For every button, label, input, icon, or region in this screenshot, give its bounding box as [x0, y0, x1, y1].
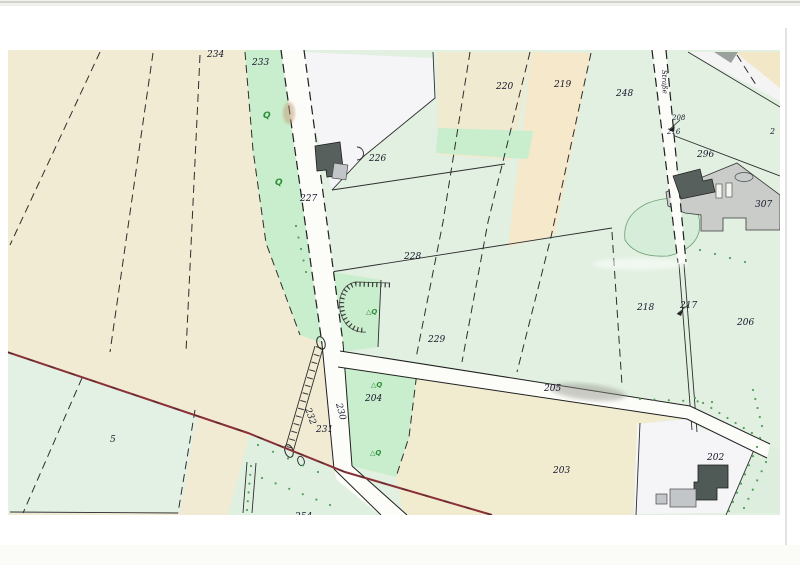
vegetation-dot	[752, 455, 754, 457]
vegetation-dot	[759, 437, 761, 439]
vegetation-dot	[744, 261, 746, 263]
vegetation-dot	[317, 471, 319, 473]
vegetation-dot	[249, 474, 251, 476]
building-202-shed	[656, 494, 667, 504]
vegetation-dot	[329, 504, 331, 506]
vegetation-dot	[275, 482, 277, 484]
oak-symbol: Q	[263, 111, 271, 121]
vegetation-dot	[246, 509, 248, 511]
vegetation-dot	[302, 464, 304, 466]
parcel-label-202: 202	[706, 453, 724, 463]
vegetation-dot	[743, 507, 745, 509]
vegetation-dot	[744, 473, 746, 475]
tree-q-symbol: △Q	[370, 449, 381, 457]
parcel-label-234: 234	[206, 50, 224, 60]
parcel-label-217: 217	[679, 301, 697, 311]
vegetation-dot	[297, 236, 299, 238]
vegetation-dot	[736, 492, 738, 494]
street-name-label: Straße	[660, 70, 669, 94]
vegetation-dot	[751, 432, 753, 434]
vegetation-dot	[302, 259, 304, 261]
parcel-label-296: 296	[696, 150, 714, 160]
smudge-road-227	[283, 102, 295, 124]
vegetation-dot	[305, 271, 307, 273]
vegetation-dot	[300, 248, 302, 250]
vegetation-dot	[756, 479, 758, 481]
parcel-label-5: 5	[110, 435, 116, 445]
parcel-label-229: 229	[427, 335, 445, 345]
parcel-label-248: 248	[615, 89, 633, 99]
parcel-label-228: 228	[403, 252, 421, 262]
vegetation-dot	[694, 397, 696, 399]
parcel-label-227: 227	[299, 194, 317, 204]
vegetation-dot	[288, 488, 290, 490]
vegetation-dot	[752, 389, 754, 391]
vegetation-dot	[247, 500, 249, 502]
vegetation-dot	[710, 407, 712, 409]
building-226-annex	[332, 163, 348, 180]
vegetation-dot	[257, 444, 259, 446]
vegetation-dot	[740, 483, 742, 485]
parcel-label-206: 206	[736, 318, 754, 328]
building-307-shed-1	[716, 184, 722, 198]
vegetation-dot	[261, 477, 263, 479]
parcel-label-204: 204	[364, 394, 382, 404]
parcel-label-231: 231	[315, 425, 333, 435]
parcel-label-205: 205	[543, 384, 561, 394]
parcel-label-208: 208	[671, 114, 686, 122]
parcel-label-203: 203	[552, 466, 570, 476]
parcel-label-226: 226	[368, 154, 386, 164]
building-307-shed-2	[726, 183, 732, 197]
parcel-label-233: 233	[251, 58, 269, 68]
vegetation-dot	[718, 412, 720, 414]
map-content: 2342332202192482082162296307226227228229…	[7, 50, 780, 522]
vegetation-dot	[697, 400, 699, 402]
vegetation-dot	[653, 399, 655, 401]
vegetation-dot	[729, 257, 731, 259]
parcel-label-307: 307	[755, 200, 772, 210]
vegetation-dot	[711, 401, 713, 403]
vegetation-dot	[726, 417, 728, 419]
vegetation-dot	[754, 398, 756, 400]
vegetation-dot	[248, 483, 250, 485]
vegetation-dot	[728, 510, 730, 512]
scan-top-band	[0, 0, 800, 6]
vegetation-dot	[668, 399, 670, 401]
tree-q-symbol: △Q	[366, 308, 377, 316]
vegetation-dot	[752, 489, 754, 491]
vegetation-dot	[759, 416, 761, 418]
tree-q-symbol: △Q	[371, 381, 382, 389]
vegetation-dot	[756, 407, 758, 409]
vegetation-dot	[287, 457, 289, 459]
vegetation-dot	[714, 253, 716, 255]
smudge-white-streak	[592, 258, 688, 270]
cadastral-map-svg: 2342332202192482082162296307226227228229…	[0, 0, 800, 565]
parcel-label-216: 216	[666, 128, 681, 136]
vegetation-dot	[272, 451, 274, 453]
vegetation-dot	[743, 427, 745, 429]
vegetation-dot	[699, 249, 701, 251]
vegetation-dot	[250, 465, 252, 467]
vegetation-dot	[639, 398, 641, 400]
vegetation-dot	[748, 464, 750, 466]
parcel-label-219: 219	[553, 80, 571, 90]
parcel-label-2: 2	[769, 127, 775, 136]
oak-symbol: Q	[275, 178, 283, 188]
vegetation-dot	[315, 499, 317, 501]
vegetation-dot	[765, 461, 767, 463]
vegetation-dot	[248, 491, 250, 493]
scan-bottom-band	[0, 545, 800, 565]
vegetation-dot	[761, 425, 763, 427]
vegetation-dot	[702, 402, 704, 404]
scanned-map-page: 2342332202192482082162296307226227228229…	[0, 0, 800, 565]
vegetation-dot	[756, 446, 758, 448]
building-202-annex	[670, 489, 696, 507]
vegetation-dot	[295, 225, 297, 227]
vegetation-dot	[732, 501, 734, 503]
vegetation-dot	[682, 400, 684, 402]
vegetation-dot	[302, 493, 304, 495]
vegetation-dot	[735, 422, 737, 424]
vegetation-dot	[761, 470, 763, 472]
vegetation-dot	[747, 498, 749, 500]
parcel-label-218: 218	[636, 303, 654, 313]
parcel-label-220: 220	[495, 82, 513, 92]
